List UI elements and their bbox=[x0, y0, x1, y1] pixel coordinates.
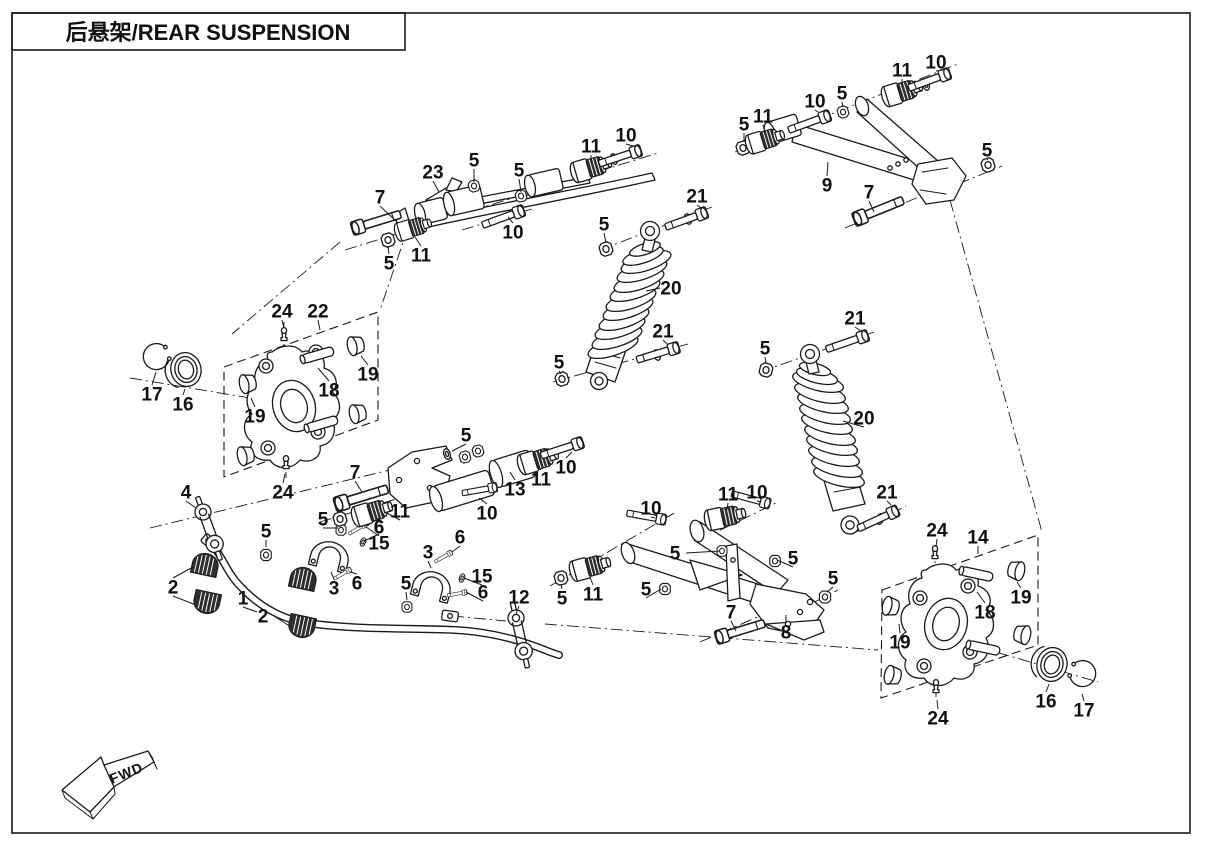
callout-17: 17 bbox=[1073, 694, 1094, 722]
svg-text:21: 21 bbox=[844, 309, 866, 330]
svg-text:10: 10 bbox=[476, 504, 497, 525]
svg-text:10: 10 bbox=[746, 483, 767, 504]
callout-16: 16 bbox=[172, 389, 193, 416]
svg-text:11: 11 bbox=[581, 137, 602, 158]
svg-text:5: 5 bbox=[599, 215, 610, 236]
svg-text:24: 24 bbox=[272, 483, 294, 504]
callout-10: 10 bbox=[640, 499, 661, 520]
cup-bushing-icon bbox=[881, 596, 901, 618]
callout-5: 5 bbox=[827, 569, 839, 593]
cup-bushing-icon bbox=[1012, 623, 1032, 645]
callout-10: 10 bbox=[615, 126, 636, 147]
bolt-icon bbox=[824, 329, 870, 355]
callout-5: 5 bbox=[982, 141, 993, 162]
callout-22: 22 bbox=[307, 302, 328, 331]
callout-6: 6 bbox=[466, 583, 488, 604]
svg-text:7: 7 bbox=[350, 463, 361, 484]
svg-text:4: 4 bbox=[181, 483, 192, 504]
callout-24: 24 bbox=[271, 302, 293, 329]
svg-text:12: 12 bbox=[508, 588, 529, 609]
svg-text:6: 6 bbox=[374, 518, 385, 539]
svg-text:19: 19 bbox=[1010, 588, 1031, 609]
svg-text:18: 18 bbox=[974, 603, 995, 624]
svg-text:22: 22 bbox=[307, 302, 328, 323]
svg-text:5: 5 bbox=[641, 580, 652, 601]
nut-icon bbox=[553, 570, 568, 586]
svg-text:11: 11 bbox=[531, 470, 552, 491]
rear-suspension-diagram: 后悬架/REAR SUSPENSION bbox=[0, 0, 1205, 843]
callout-10: 10 bbox=[925, 53, 946, 74]
bolt-icon bbox=[664, 206, 709, 232]
callout-16: 16 bbox=[1035, 684, 1056, 713]
bearing-icon bbox=[1028, 643, 1071, 685]
svg-text:19: 19 bbox=[244, 407, 265, 428]
svg-text:24: 24 bbox=[271, 302, 293, 323]
callout-4: 4 bbox=[181, 483, 196, 509]
cup-bushing-icon bbox=[883, 665, 903, 687]
stabilizer-link-icon bbox=[189, 494, 228, 563]
svg-text:5: 5 bbox=[461, 426, 472, 447]
svg-text:11: 11 bbox=[390, 502, 411, 523]
grease-fitting-icon bbox=[933, 680, 939, 693]
parts-diagram-page: 后悬架/REAR SUSPENSION bbox=[0, 0, 1205, 843]
svg-text:6: 6 bbox=[352, 574, 363, 595]
svg-text:13: 13 bbox=[504, 480, 525, 501]
bushing-icon bbox=[703, 502, 748, 531]
svg-text:3: 3 bbox=[423, 543, 434, 564]
svg-text:5: 5 bbox=[837, 84, 848, 105]
svg-text:10: 10 bbox=[615, 126, 636, 147]
svg-text:19: 19 bbox=[357, 365, 378, 386]
svg-text:2: 2 bbox=[168, 578, 179, 599]
svg-text:5: 5 bbox=[828, 569, 839, 590]
bolt-icon bbox=[635, 341, 681, 365]
svg-text:10: 10 bbox=[804, 92, 825, 113]
callout-19: 19 bbox=[357, 356, 378, 386]
svg-text:9: 9 bbox=[822, 176, 833, 197]
callout-10: 10 bbox=[746, 483, 767, 504]
callout-10: 10 bbox=[804, 92, 825, 113]
nut-icon bbox=[458, 450, 471, 464]
callout-11: 11 bbox=[583, 577, 604, 606]
callout-6: 6 bbox=[452, 528, 465, 553]
grease-fitting-icon bbox=[281, 328, 287, 341]
svg-text:20: 20 bbox=[660, 279, 681, 300]
svg-text:17: 17 bbox=[141, 385, 162, 406]
svg-text:5: 5 bbox=[469, 151, 480, 172]
callout-9: 9 bbox=[822, 162, 833, 197]
callout-24: 24 bbox=[926, 521, 948, 548]
callout-21: 21 bbox=[686, 187, 708, 209]
snap-ring-icon bbox=[142, 342, 173, 372]
shock-absorber-left-group bbox=[554, 206, 709, 389]
grease-fitting-icon bbox=[283, 456, 289, 469]
nut-icon bbox=[471, 444, 484, 458]
svg-text:10: 10 bbox=[555, 458, 576, 479]
svg-text:16: 16 bbox=[172, 395, 193, 416]
callout-5: 5 bbox=[384, 246, 395, 275]
svg-text:19: 19 bbox=[889, 633, 910, 654]
svg-text:5: 5 bbox=[401, 574, 412, 595]
svg-text:7: 7 bbox=[864, 183, 875, 204]
callout-3: 3 bbox=[423, 543, 434, 569]
callout-5: 5 bbox=[401, 574, 412, 601]
svg-text:17: 17 bbox=[1073, 701, 1094, 722]
cup-bushing-icon bbox=[1006, 559, 1026, 581]
callout-5: 5 bbox=[557, 584, 568, 610]
callout-7: 7 bbox=[726, 603, 737, 632]
bolt-icon bbox=[434, 550, 454, 565]
callout-10: 10 bbox=[476, 498, 497, 525]
svg-text:21: 21 bbox=[876, 483, 898, 504]
svg-text:14: 14 bbox=[967, 528, 989, 549]
callout-6: 6 bbox=[350, 572, 362, 595]
callout-24: 24 bbox=[927, 700, 949, 730]
svg-text:11: 11 bbox=[892, 61, 913, 82]
callout-5: 5 bbox=[514, 161, 525, 193]
nut-icon bbox=[758, 362, 773, 378]
callout-21: 21 bbox=[652, 322, 674, 346]
svg-text:21: 21 bbox=[686, 187, 708, 208]
bolt-icon bbox=[597, 144, 643, 169]
svg-text:5: 5 bbox=[554, 353, 565, 374]
svg-text:2: 2 bbox=[258, 607, 269, 628]
svg-text:18: 18 bbox=[318, 381, 339, 402]
clamp-icon bbox=[308, 538, 351, 573]
svg-text:5: 5 bbox=[318, 510, 329, 531]
svg-text:11: 11 bbox=[411, 246, 432, 267]
callout-11: 11 bbox=[411, 237, 432, 267]
svg-text:5: 5 bbox=[557, 589, 568, 610]
callout-5: 5 bbox=[837, 84, 848, 108]
svg-text:5: 5 bbox=[514, 161, 525, 182]
nut-icon bbox=[598, 241, 614, 257]
callout-5: 5 bbox=[599, 215, 610, 244]
svg-text:23: 23 bbox=[422, 163, 443, 184]
svg-text:10: 10 bbox=[640, 499, 661, 520]
svg-text:21: 21 bbox=[652, 322, 674, 343]
nut-icon bbox=[402, 602, 412, 613]
bearing-icon bbox=[162, 349, 205, 391]
svg-text:24: 24 bbox=[927, 709, 949, 730]
nut-icon bbox=[660, 583, 671, 594]
cup-bushing-icon bbox=[348, 402, 368, 424]
svg-text:10: 10 bbox=[925, 53, 946, 74]
svg-text:10: 10 bbox=[502, 223, 523, 244]
svg-text:5: 5 bbox=[261, 522, 272, 543]
svg-text:11: 11 bbox=[583, 585, 604, 606]
callout-7: 7 bbox=[350, 463, 362, 493]
nut-icon bbox=[332, 511, 348, 527]
grease-fitting-icon bbox=[932, 546, 938, 559]
fwd-arrow: FWD bbox=[62, 751, 157, 819]
svg-text:7: 7 bbox=[375, 188, 386, 209]
snap-ring-icon bbox=[1067, 659, 1098, 689]
cup-bushing-icon bbox=[346, 334, 366, 356]
svg-text:5: 5 bbox=[384, 254, 395, 275]
callout-14: 14 bbox=[967, 528, 989, 555]
svg-text:11: 11 bbox=[718, 485, 739, 506]
nut-icon bbox=[261, 549, 272, 560]
svg-text:5: 5 bbox=[760, 339, 771, 360]
nut-icon bbox=[336, 525, 346, 536]
svg-text:6: 6 bbox=[455, 528, 466, 549]
callout-21: 21 bbox=[876, 483, 898, 506]
nut-icon bbox=[380, 232, 396, 248]
svg-text:16: 16 bbox=[1035, 692, 1056, 713]
callout-5: 5 bbox=[554, 353, 565, 375]
callout-5: 5 bbox=[641, 580, 661, 601]
callout-5: 5 bbox=[469, 151, 480, 183]
page-title: 后悬架/REAR SUSPENSION bbox=[66, 20, 351, 45]
svg-text:3: 3 bbox=[329, 579, 340, 600]
callout-5: 5 bbox=[261, 522, 272, 548]
callout-17: 17 bbox=[141, 372, 162, 406]
svg-text:5: 5 bbox=[982, 141, 993, 162]
svg-text:1: 1 bbox=[238, 589, 249, 610]
svg-text:7: 7 bbox=[726, 603, 737, 624]
bolt-icon bbox=[851, 194, 905, 227]
callout-5: 5 bbox=[452, 426, 472, 452]
title-block: 后悬架/REAR SUSPENSION bbox=[12, 13, 405, 50]
clamp-icon bbox=[410, 568, 453, 603]
callout-5: 5 bbox=[760, 339, 771, 364]
callout-21: 21 bbox=[844, 309, 866, 332]
callout-23: 23 bbox=[422, 163, 443, 193]
svg-text:5: 5 bbox=[739, 115, 750, 136]
nut-icon bbox=[819, 591, 830, 603]
svg-text:6: 6 bbox=[478, 583, 489, 604]
svg-text:8: 8 bbox=[781, 623, 792, 644]
svg-text:11: 11 bbox=[753, 107, 774, 128]
svg-text:5: 5 bbox=[788, 549, 799, 570]
washer-icon bbox=[359, 537, 367, 547]
callout-24: 24 bbox=[272, 474, 294, 504]
svg-text:5: 5 bbox=[670, 544, 681, 565]
rubber-bushing-icon bbox=[192, 589, 222, 615]
rubber-bushing-icon bbox=[288, 565, 318, 591]
svg-text:24: 24 bbox=[926, 521, 948, 542]
svg-text:20: 20 bbox=[853, 409, 874, 430]
callout-19: 19 bbox=[1010, 582, 1031, 609]
bolt-icon bbox=[856, 505, 901, 534]
